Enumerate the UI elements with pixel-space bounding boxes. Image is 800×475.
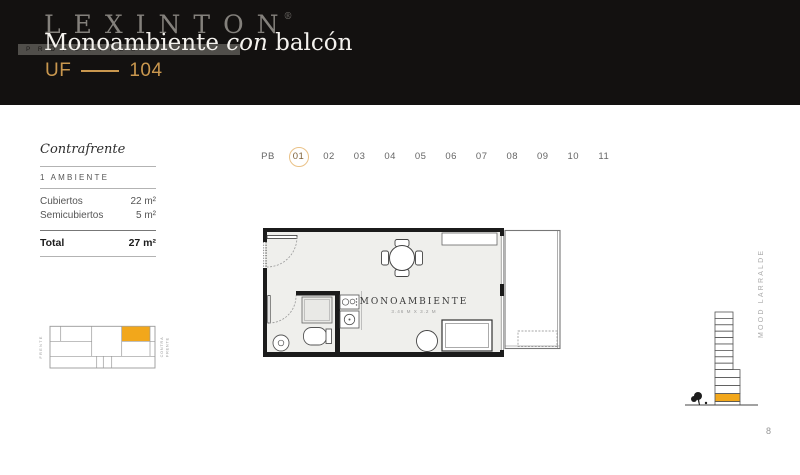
- back-label-line1: CONTRA: [160, 337, 164, 358]
- chair: [382, 251, 389, 265]
- chair: [416, 251, 423, 265]
- title-word: Monoambiente: [44, 30, 219, 56]
- highlighted-floor: [715, 394, 740, 402]
- building-elevation-icon: [678, 303, 768, 413]
- registered-mark-icon: ®: [283, 12, 292, 22]
- floor-tab-01-selected[interactable]: 01: [289, 147, 309, 167]
- floor-tab-09[interactable]: 09: [533, 147, 553, 167]
- title-word-italic: con: [226, 30, 268, 56]
- ground-floor: [715, 402, 740, 405]
- area-value: 5 m²: [136, 209, 156, 223]
- toilet: [304, 328, 332, 346]
- page-number: 8: [766, 426, 771, 436]
- area-rows: Cubiertos 22 m² Semicubiertos 5 m²: [40, 189, 156, 230]
- total-value: 27 m²: [129, 237, 156, 249]
- area-label: Semicubiertos: [40, 209, 103, 223]
- total-label: Total: [40, 237, 64, 249]
- floor-tab-08[interactable]: 08: [502, 147, 522, 167]
- area-value: 22 m²: [130, 195, 156, 209]
- unit-dash-divider: [81, 70, 119, 72]
- balcony: [505, 231, 560, 349]
- room-label: MONOAMBIENTE: [360, 297, 469, 307]
- closet: [442, 233, 497, 245]
- floor-tab-10[interactable]: 10: [563, 147, 583, 167]
- tower-floors: [715, 312, 740, 394]
- room-dimensions: 3.46 M X 3.2 M: [391, 309, 436, 314]
- key-plan: FRENTE CONTRA FRENTE: [36, 318, 176, 380]
- table-row: Cubiertos 22 m²: [40, 195, 156, 209]
- title-word: balcón: [275, 30, 352, 56]
- front-label: FRENTE: [38, 335, 43, 358]
- unit-number: 104: [129, 60, 162, 82]
- table-row: Semicubiertos 5 m²: [40, 209, 156, 223]
- floor-tab-05[interactable]: 05: [411, 147, 431, 167]
- divider: [40, 256, 156, 257]
- floor-tab-pb[interactable]: PB: [258, 147, 278, 167]
- bed: [442, 320, 492, 351]
- ambientes-label: 1 AMBIENTE: [40, 167, 156, 188]
- floor-tab-11[interactable]: 11: [594, 147, 614, 167]
- floor-plan: MONOAMBIENTE 3.46 M X 3.2 M: [256, 220, 568, 362]
- tree-icon: [691, 392, 707, 405]
- floor-tab-04[interactable]: 04: [380, 147, 400, 167]
- total-row: Total 27 m²: [40, 231, 156, 256]
- floor-tab-03[interactable]: 03: [350, 147, 370, 167]
- floor-tab-02[interactable]: 02: [319, 147, 339, 167]
- back-label-line2: FRENTE: [166, 337, 170, 357]
- header: LEXINTON® PROPERTIES Monoambiente con ba…: [0, 0, 800, 105]
- floor-tab-06[interactable]: 06: [441, 147, 461, 167]
- side-table: [417, 331, 438, 352]
- area-label: Cubiertos: [40, 195, 83, 209]
- unit-prefix: UF: [45, 60, 71, 82]
- shower: [302, 297, 332, 323]
- highlighted-unit: [122, 327, 150, 342]
- floor-selector: PB 01 02 03 04 05 06 07 08 09 10 11: [258, 147, 614, 167]
- unit-info-panel: Contrafrente 1 AMBIENTE Cubiertos 22 m² …: [40, 142, 156, 257]
- floor-tab-07[interactable]: 07: [472, 147, 492, 167]
- bathroom-sink: [273, 335, 289, 351]
- orientation-label: Contrafrente: [40, 142, 156, 157]
- unit-identifier: UF 104: [45, 60, 163, 82]
- page-title: Monoambiente con balcón: [44, 30, 352, 56]
- project-side-label: MOOD LARRALDE: [758, 228, 765, 338]
